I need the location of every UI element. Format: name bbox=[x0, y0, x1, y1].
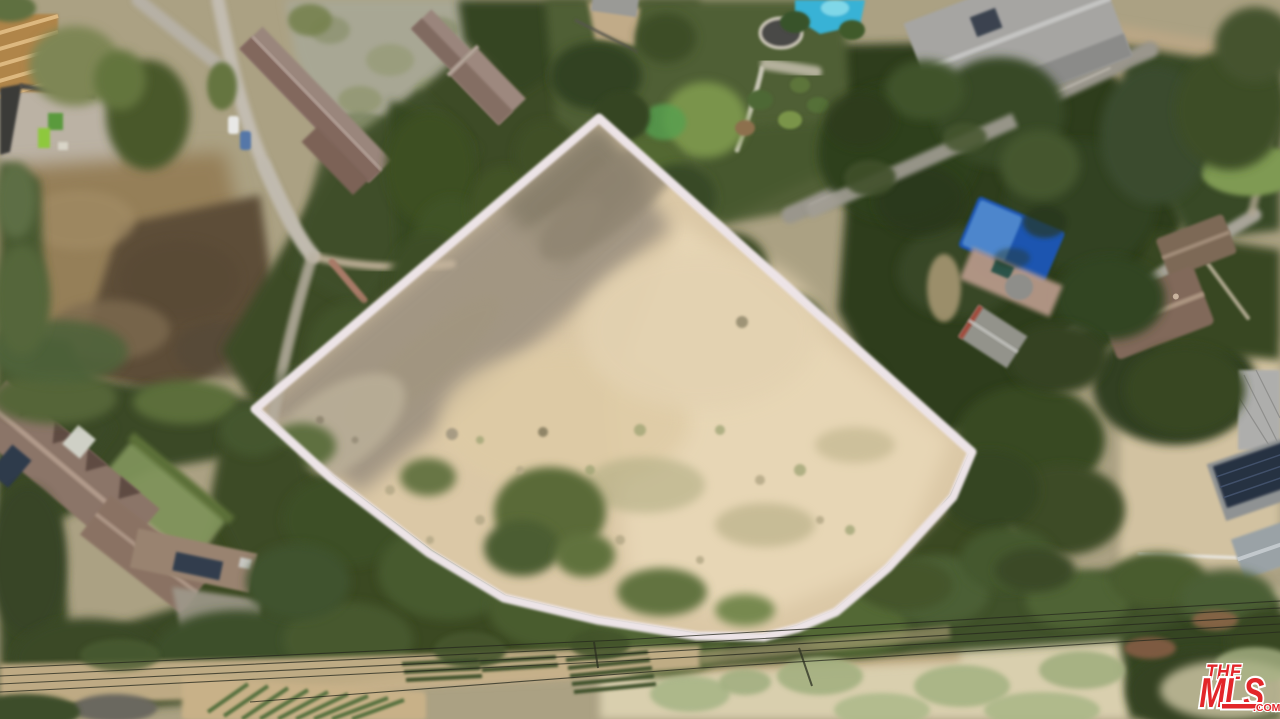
svg-text:.COM: .COM bbox=[1253, 702, 1280, 714]
